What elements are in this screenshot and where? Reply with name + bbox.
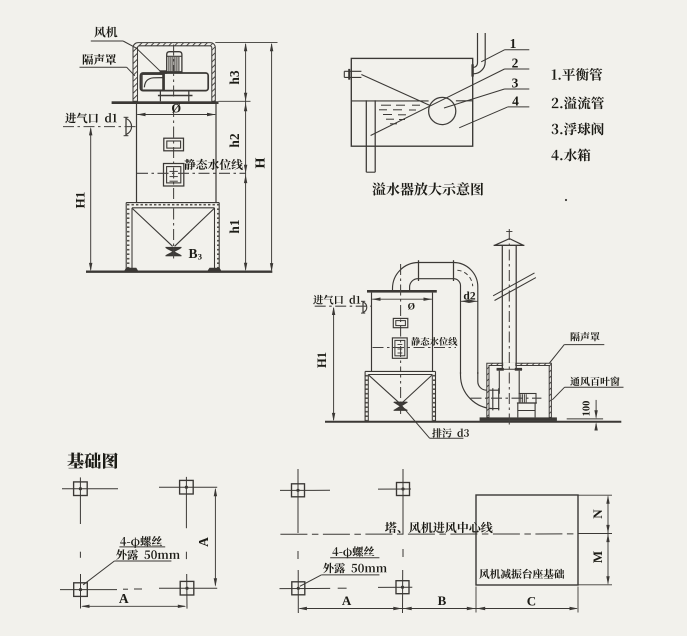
svg-text:A: A xyxy=(196,537,211,547)
svg-text:B: B xyxy=(438,593,447,608)
svg-text:N: N xyxy=(590,509,605,519)
svg-text:A: A xyxy=(119,591,129,606)
svg-text:4: 4 xyxy=(512,93,519,108)
svg-text:A: A xyxy=(342,593,352,608)
svg-text:3: 3 xyxy=(198,251,202,261)
svg-text:h1: h1 xyxy=(227,219,242,234)
svg-text:d2: d2 xyxy=(463,291,475,303)
svg-text:Ø: Ø xyxy=(408,302,415,312)
svg-text:B: B xyxy=(189,246,198,261)
svg-text:Ø: Ø xyxy=(171,101,181,115)
svg-text:H1: H1 xyxy=(315,352,329,368)
svg-text:2: 2 xyxy=(512,55,519,70)
svg-text:h2: h2 xyxy=(227,133,242,148)
svg-text:h3: h3 xyxy=(227,70,242,85)
svg-text:100: 100 xyxy=(582,401,593,417)
svg-text:3: 3 xyxy=(512,75,519,90)
svg-text:M: M xyxy=(590,551,605,563)
svg-text:C: C xyxy=(527,593,536,608)
svg-text:H1: H1 xyxy=(73,192,88,209)
svg-text:1: 1 xyxy=(510,36,517,51)
svg-text:H: H xyxy=(253,157,268,168)
